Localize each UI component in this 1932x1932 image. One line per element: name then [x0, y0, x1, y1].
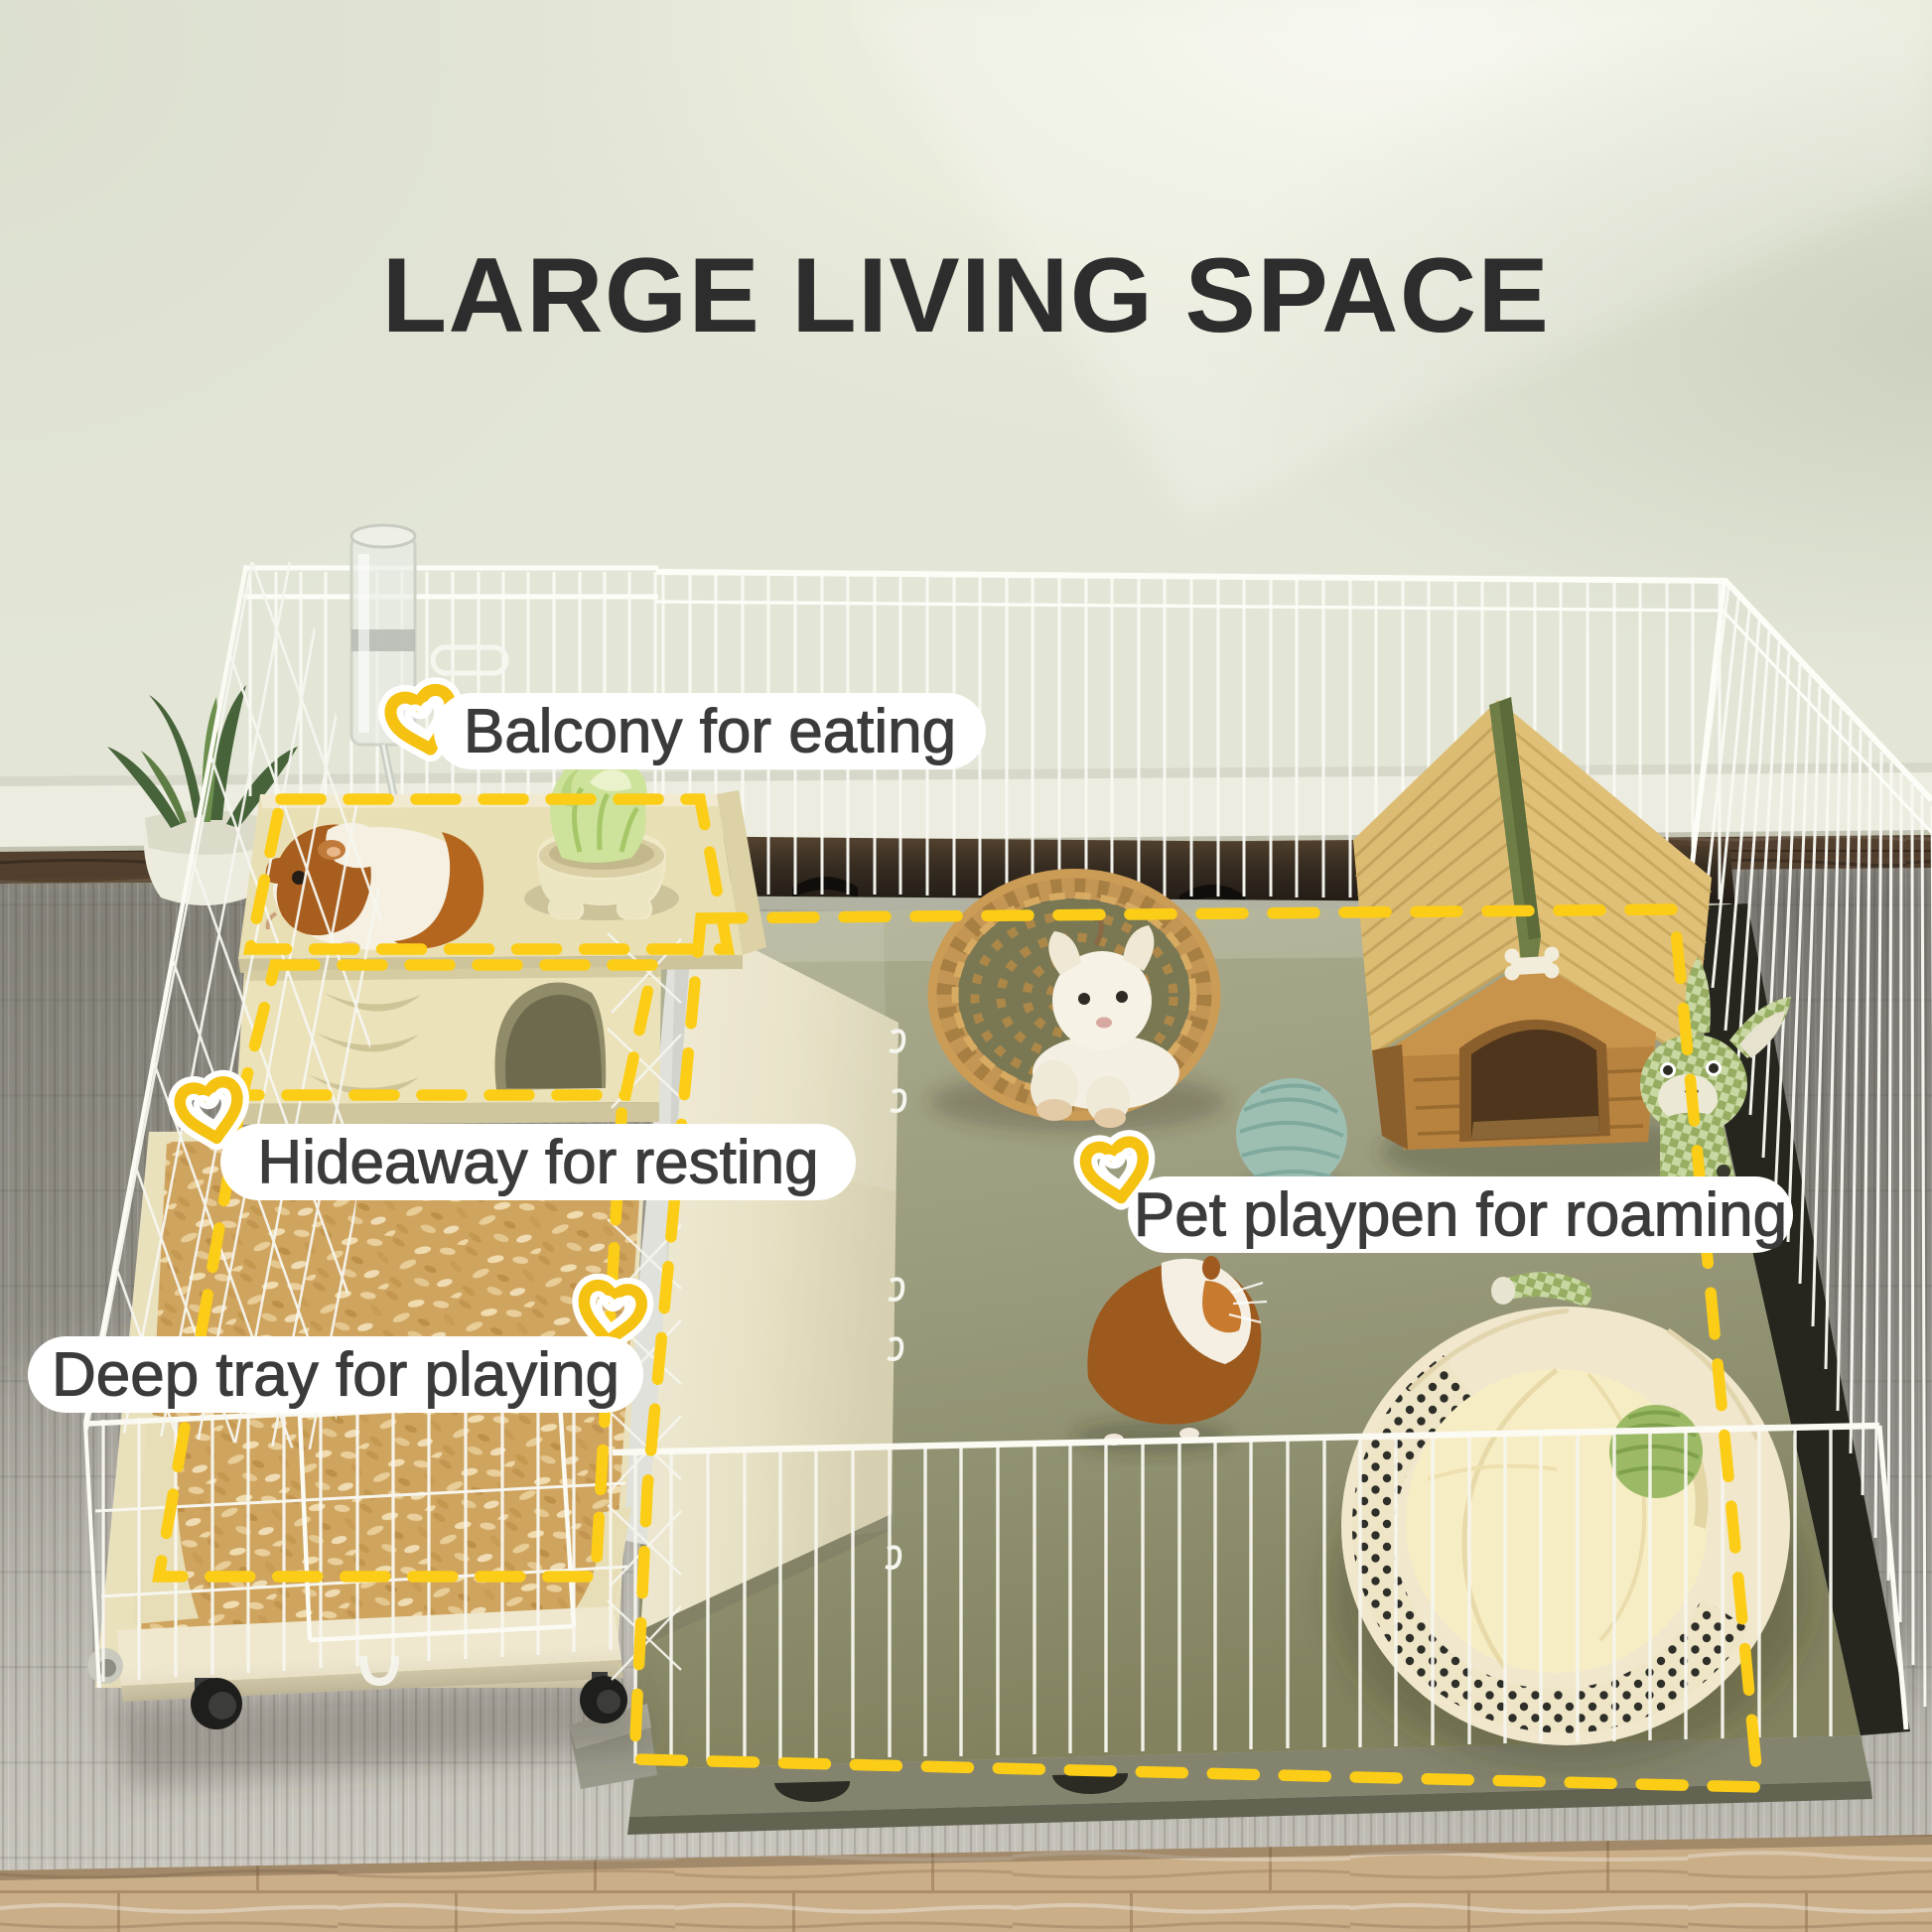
svg-text:Balcony for eating: Balcony for eating — [464, 698, 956, 766]
svg-text:Pet playpen for roaming: Pet playpen for roaming — [1134, 1181, 1787, 1250]
svg-text:Deep tray for playing: Deep tray for playing — [52, 1341, 620, 1410]
svg-text:LARGE LIVING SPACE: LARGE LIVING SPACE — [382, 235, 1551, 354]
svg-text:Hideaway for resting: Hideaway for resting — [257, 1129, 818, 1197]
